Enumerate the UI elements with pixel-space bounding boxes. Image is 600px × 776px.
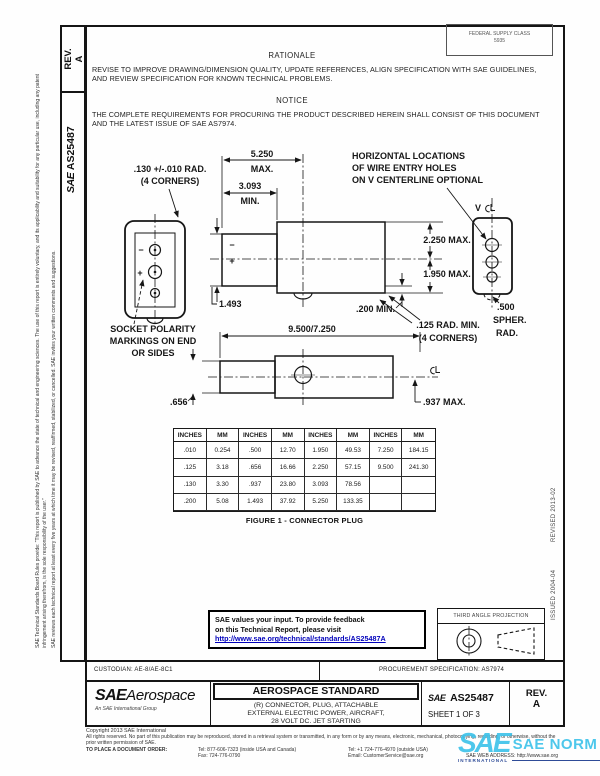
table-cell: .200 bbox=[174, 494, 207, 511]
footer-rev-cell: REV. A bbox=[510, 682, 563, 727]
table-cell: 2.250 bbox=[305, 459, 338, 476]
svg-text:SPHER.: SPHER. bbox=[493, 315, 527, 325]
table-cell: 0.254 bbox=[207, 442, 240, 459]
table-cell: 57.15 bbox=[337, 459, 370, 476]
front-minus-mark: − bbox=[138, 245, 143, 255]
svg-text:HORIZONTAL LOCATIONS: HORIZONTAL LOCATIONS bbox=[352, 151, 465, 161]
watermark-sae-logo: SAE bbox=[458, 729, 510, 757]
figure-caption: FIGURE 1 - CONNECTOR PLUG bbox=[173, 516, 436, 525]
table-cell: 133.35 bbox=[337, 494, 370, 511]
svg-text:.500: .500 bbox=[497, 302, 515, 312]
svg-text:.200 MIN.: .200 MIN. bbox=[356, 304, 395, 314]
socket-polarity-note: SOCKET POLARITY MARKINGS ON END OR SIDES bbox=[110, 280, 197, 358]
svg-text:MIN.: MIN. bbox=[241, 196, 260, 206]
socket-line3: OR SIDES bbox=[131, 348, 174, 358]
third-angle-projection-icon bbox=[438, 624, 543, 658]
doc-title-line2: EXTERNAL ELECTRIC POWER, AIRCRAFT, bbox=[211, 710, 421, 718]
side-plus-mark: + bbox=[229, 256, 234, 266]
doc-title-line1: (R) CONNECTOR, PLUG, ATTACHABLE bbox=[211, 702, 421, 710]
sheet-number: SHEET 1 OF 3 bbox=[428, 710, 509, 719]
table-header-cell: INCHES bbox=[370, 429, 403, 442]
feedback-box: SAE values your input. To provide feedba… bbox=[208, 610, 426, 649]
svg-text:.656: .656 bbox=[170, 397, 188, 407]
front-face-view: − + bbox=[125, 214, 185, 327]
rationale-heading: RATIONALE bbox=[92, 51, 492, 60]
table-cell: 1.950 bbox=[305, 442, 338, 459]
dim-9500-7250: 9.500/7.250 bbox=[220, 324, 420, 358]
side-minus-mark: − bbox=[229, 240, 234, 250]
table-cell: 3.093 bbox=[305, 477, 338, 494]
table-header-cell: MM bbox=[272, 429, 305, 442]
sae-mark: SAE bbox=[65, 173, 77, 193]
sae-norm-watermark: SAE SAE NORM INTERNATIONAL bbox=[458, 729, 600, 775]
table-cell bbox=[370, 494, 403, 511]
table-cell: 7.250 bbox=[370, 442, 403, 459]
custodian: CUSTODIAN: AE-8/AE-8C1 bbox=[87, 662, 320, 680]
table-header-cell: INCHES bbox=[305, 429, 338, 442]
projection-label: THIRD ANGLE PROJECTION bbox=[438, 609, 544, 624]
id-number: AS25487 bbox=[450, 692, 494, 704]
watermark-international: INTERNATIONAL bbox=[458, 758, 508, 763]
connector-plug-drawing: − + .130 +/-.010 RAD. (4 CORNERS) SOCKET… bbox=[90, 146, 550, 418]
doc-number: AS25487 bbox=[65, 126, 77, 170]
table-cell: 5.08 bbox=[207, 494, 240, 511]
v-centerline-label: V bbox=[475, 203, 481, 213]
sae-aerospace-logo: SAEAerospace An SAE International Group bbox=[87, 682, 210, 727]
procurement-spec: PROCUREMENT SPECIFICATION: AS7974 bbox=[320, 662, 563, 680]
table-cell: 3.30 bbox=[207, 477, 240, 494]
table-cell: 184.15 bbox=[402, 442, 435, 459]
table-cell: 5.250 bbox=[305, 494, 338, 511]
feedback-url-link[interactable]: http://www.sae.org/technical/standards/A… bbox=[215, 634, 419, 644]
document-page: SAE Technical Standards Board Rules prov… bbox=[0, 0, 600, 776]
table-header-cell: MM bbox=[207, 429, 240, 442]
dim-937: .937 MAX. bbox=[415, 380, 466, 407]
rad130-line2: (4 CORNERS) bbox=[141, 176, 200, 186]
svg-text:(4 CORNERS): (4 CORNERS) bbox=[419, 333, 478, 343]
fsc-line1: FEDERAL SUPPLY CLASS bbox=[447, 31, 552, 38]
svg-text:9.500/7.250: 9.500/7.250 bbox=[288, 324, 336, 334]
dim-5250: 5.250 MAX. bbox=[222, 149, 301, 228]
watermark-norm-text: SAE NORM bbox=[513, 737, 598, 752]
footer-block: CUSTODIAN: AE-8/AE-8C1 PROCUREMENT SPECI… bbox=[85, 660, 565, 727]
table-cell: 23.80 bbox=[272, 477, 305, 494]
corner-radius-label: .130 +/-.010 RAD. (4 CORNERS) bbox=[134, 164, 207, 217]
feedback-line1: SAE values your input. To provide feedba… bbox=[215, 615, 419, 625]
notice-body: THE COMPLETE REQUIREMENTS FOR PROCURING … bbox=[92, 111, 544, 129]
bottom-side-view bbox=[208, 349, 438, 405]
svg-text:2.250 MAX.: 2.250 MAX. bbox=[423, 235, 471, 245]
title-block-row: SAEAerospace An SAE International Group … bbox=[87, 682, 563, 727]
svg-text:RAD.: RAD. bbox=[496, 328, 518, 338]
socket-line1: SOCKET POLARITY bbox=[110, 324, 196, 334]
rear-view: V bbox=[473, 198, 512, 308]
doc-title-line3: 28 VOLT DC. JET STARTING bbox=[211, 718, 421, 726]
dim-656: .656 bbox=[170, 349, 220, 407]
table-cell: .130 bbox=[174, 477, 207, 494]
rationale-body: REVISE TO IMPROVE DRAWING/DIMENSION QUAL… bbox=[92, 66, 544, 84]
left-margin-disclaimer-2: SAE reviews each technical report at lea… bbox=[51, 56, 58, 648]
rev-label: REV. bbox=[64, 27, 75, 91]
logo-sae: SAE bbox=[95, 687, 126, 704]
dim-3093: 3.093 MIN. bbox=[224, 181, 277, 220]
table-cell: .125 bbox=[174, 459, 207, 476]
watermark-rule bbox=[512, 760, 600, 761]
dim-2250-1950-200: 2.250 MAX. 1.950 MAX. .200 MIN. bbox=[356, 222, 471, 314]
centerline-symbol-icon bbox=[486, 204, 495, 212]
rev-box-text: REV. A bbox=[64, 27, 85, 91]
wire-entry-note: HORIZONTAL LOCATIONS OF WIRE ENTRY HOLES… bbox=[352, 151, 486, 239]
table-cell: .937 bbox=[239, 477, 272, 494]
table-cell: .500 bbox=[239, 442, 272, 459]
svg-text:1.950 MAX.: 1.950 MAX. bbox=[423, 269, 471, 279]
svg-text:.125 RAD. MIN.: .125 RAD. MIN. bbox=[416, 320, 480, 330]
front-plus-mark: + bbox=[137, 268, 142, 278]
spher-rad-label: .500 SPHER. RAD. bbox=[493, 297, 527, 338]
doc-number-text: SAE AS25487 bbox=[65, 98, 77, 193]
revised-date: REVISED 2013-02 bbox=[551, 462, 557, 542]
fsc-line2: 5935 bbox=[447, 38, 552, 45]
table-cell: 78.56 bbox=[337, 477, 370, 494]
id-sae-mark: SAE bbox=[428, 693, 446, 703]
table-cell bbox=[370, 477, 403, 494]
svg-text:OF WIRE ENTRY HOLES: OF WIRE ENTRY HOLES bbox=[352, 163, 457, 173]
table-cell: 49.53 bbox=[337, 442, 370, 459]
table-cell: 12.70 bbox=[272, 442, 305, 459]
rev-value: A bbox=[75, 27, 86, 91]
table-header-cell: INCHES bbox=[239, 429, 272, 442]
doc-type: AEROSPACE STANDARD bbox=[213, 683, 419, 700]
table-cell: .010 bbox=[174, 442, 207, 459]
svg-text:ON V CENTERLINE OPTIONAL: ON V CENTERLINE OPTIONAL bbox=[352, 175, 484, 185]
doc-id-cell: SAE AS25487 SHEET 1 OF 3 bbox=[422, 682, 510, 727]
fax-number: Fax: 724-776-0790 bbox=[198, 754, 348, 760]
socket-line2: MARKINGS ON END bbox=[110, 336, 197, 346]
table-cell: 241.30 bbox=[402, 459, 435, 476]
dim-1493: 1.493 bbox=[212, 287, 242, 309]
footer-rev-label: REV. bbox=[510, 688, 563, 699]
table-cell bbox=[402, 477, 435, 494]
table-cell bbox=[402, 494, 435, 511]
standard-title-cell: AEROSPACE STANDARD (R) CONNECTOR, PLUG, … bbox=[210, 682, 422, 727]
footer-rev-value: A bbox=[510, 699, 563, 710]
logo-tagline: An SAE International Group bbox=[95, 706, 210, 712]
table-cell: 1.493 bbox=[239, 494, 272, 511]
svg-text:.937 MAX.: .937 MAX. bbox=[423, 397, 466, 407]
notice-heading: NOTICE bbox=[92, 96, 492, 105]
logo-aerospace: Aerospace bbox=[126, 687, 195, 704]
table-header-cell: INCHES bbox=[174, 429, 207, 442]
table-cell: 16.66 bbox=[272, 459, 305, 476]
feedback-line2: on this Technical Report, please visit bbox=[215, 625, 419, 635]
table-header-cell: MM bbox=[337, 429, 370, 442]
conversion-table: INCHESMMINCHESMMINCHESMMINCHESMM.0100.25… bbox=[173, 428, 436, 512]
svg-text:1.493: 1.493 bbox=[219, 299, 242, 309]
table-cell: 37.92 bbox=[272, 494, 305, 511]
svg-text:3.093: 3.093 bbox=[239, 181, 262, 191]
svg-text:MAX.: MAX. bbox=[251, 164, 274, 174]
centerline-symbol-icon bbox=[431, 366, 440, 374]
table-cell: .656 bbox=[239, 459, 272, 476]
email-address: Email: CustomerService@sae.org bbox=[348, 754, 466, 760]
table-cell: 3.18 bbox=[207, 459, 240, 476]
rad130-line1: .130 +/-.010 RAD. bbox=[134, 164, 207, 174]
issued-date: ISSUED 2004-04 bbox=[551, 546, 557, 620]
left-margin-disclaimer-1: SAE Technical Standards Board Rules prov… bbox=[35, 56, 48, 648]
table-cell: 9.500 bbox=[370, 459, 403, 476]
custodian-row: CUSTODIAN: AE-8/AE-8C1 PROCUREMENT SPECI… bbox=[87, 662, 563, 682]
svg-text:5.250: 5.250 bbox=[251, 149, 274, 159]
table-header-cell: MM bbox=[402, 429, 435, 442]
projection-box: THIRD ANGLE PROJECTION bbox=[437, 608, 545, 660]
